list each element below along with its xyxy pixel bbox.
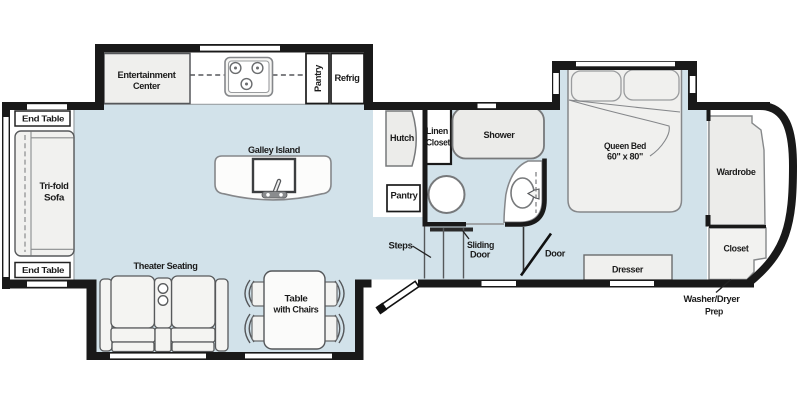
svg-text:End Table: End Table: [22, 265, 65, 275]
svg-text:60" x 80": 60" x 80": [607, 151, 643, 162]
svg-text:Door: Door: [545, 248, 566, 259]
svg-text:Wardrobe: Wardrobe: [717, 167, 756, 178]
svg-text:Prep: Prep: [705, 306, 723, 317]
svg-text:Refrig: Refrig: [335, 73, 361, 84]
svg-text:Closet: Closet: [724, 243, 750, 254]
svg-text:End Table: End Table: [22, 114, 65, 124]
svg-text:Queen Bed: Queen Bed: [604, 141, 646, 152]
svg-text:Pantry: Pantry: [313, 64, 324, 92]
svg-text:Closet: Closet: [426, 137, 451, 148]
svg-text:Theater Seating: Theater Seating: [134, 261, 199, 272]
svg-text:Entertainment: Entertainment: [118, 70, 177, 81]
svg-text:Steps: Steps: [389, 240, 413, 251]
svg-text:Galley Island: Galley Island: [248, 145, 301, 156]
svg-text:with Chairs: with Chairs: [273, 304, 319, 315]
svg-text:Hutch: Hutch: [390, 133, 415, 144]
svg-text:Table: Table: [285, 293, 308, 304]
svg-text:Door: Door: [470, 249, 491, 260]
svg-text:Tri-fold: Tri-fold: [40, 181, 70, 192]
svg-text:Shower: Shower: [484, 130, 516, 141]
svg-text:Sofa: Sofa: [44, 192, 65, 203]
svg-text:Linen: Linen: [426, 126, 448, 137]
svg-text:Center: Center: [133, 81, 161, 92]
svg-text:Washer/Dryer: Washer/Dryer: [684, 294, 741, 305]
svg-text:Dresser: Dresser: [612, 264, 644, 275]
svg-text:Pantry: Pantry: [391, 190, 419, 201]
